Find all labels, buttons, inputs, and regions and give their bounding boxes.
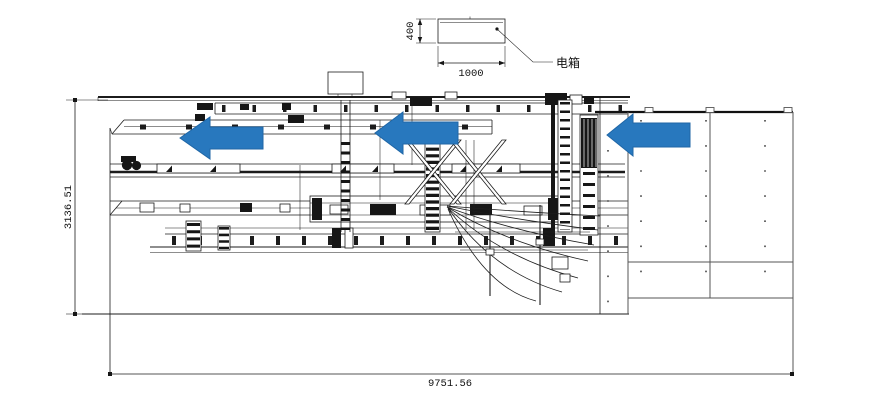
height-dimension: 3136.51 <box>63 98 108 316</box>
machine-mid-rail <box>110 164 625 177</box>
machine-lower-rail <box>110 196 628 222</box>
width-dim-label: 9751.56 <box>428 378 472 390</box>
width-dimension: 9751.56 <box>108 372 794 390</box>
ebox-callout-label: 电箱 <box>556 55 580 70</box>
flow-arrow-left-3 <box>607 114 690 156</box>
component-box <box>328 72 363 97</box>
detail-callout: 400 1000 电箱 <box>405 17 580 81</box>
machine-bottom-rail <box>150 221 628 253</box>
cad-drawing-canvas: 400 1000 电箱 3136.51 9751.56 <box>0 0 880 400</box>
flow-arrow-left-1 <box>180 117 263 159</box>
ebox-height-dim-label: 400 <box>405 22 417 41</box>
machine-body <box>82 92 630 374</box>
machine-layout-drawing: 400 1000 电箱 3136.51 9751.56 <box>0 0 880 400</box>
flow-arrow-left-2 <box>375 112 458 154</box>
cable-fan <box>447 205 600 305</box>
height-dim-label: 3136.51 <box>63 185 75 229</box>
ebox-width-dim-label: 1000 <box>458 68 483 80</box>
